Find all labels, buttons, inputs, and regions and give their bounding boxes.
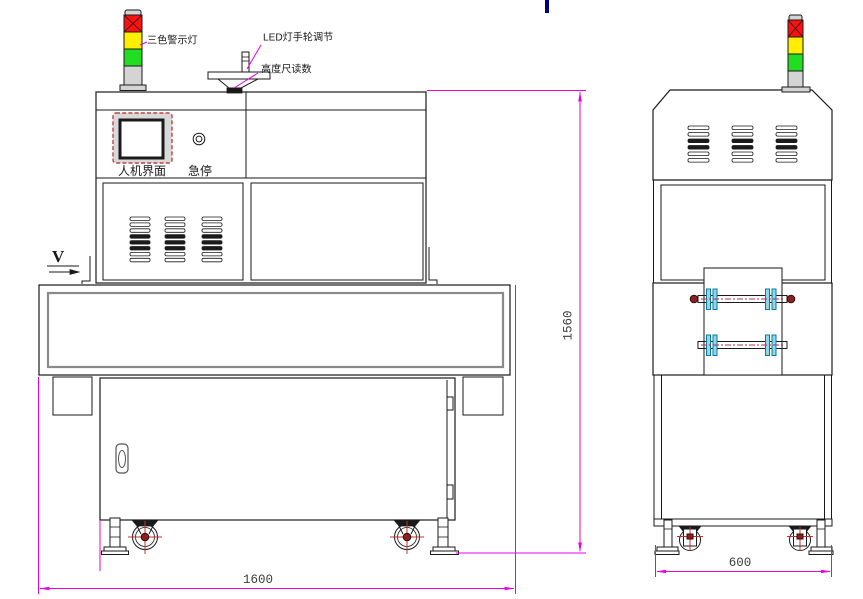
door-hinge: [447, 397, 453, 410]
tower-base-segment: [124, 66, 142, 85]
text-cursor-mark: [545, 0, 549, 13]
support-block-left: [53, 377, 92, 415]
dimension-overall-height: 1560: [563, 304, 576, 348]
center-block: [704, 268, 782, 375]
dimension-overall-depth: 600: [722, 557, 758, 570]
left-bracket: [82, 256, 90, 284]
caster-wheel-side: [787, 526, 813, 551]
tower-green-segment: [124, 49, 142, 66]
base-plate: [654, 519, 832, 526]
estop-label: 急停: [188, 165, 212, 178]
mount-screw: [787, 295, 795, 303]
cad-linework: [0, 0, 863, 599]
gauge-cone: [218, 79, 258, 88]
conveyor-section: [39, 285, 510, 375]
warning-tower-front: [120, 10, 146, 91]
door-handle-grip: [119, 451, 126, 468]
side-view: [653, 15, 833, 555]
direction-label: V: [52, 248, 64, 265]
door-hinge: [447, 485, 453, 499]
leveling-foot: [431, 518, 459, 555]
tower-base-plate: [120, 85, 146, 91]
gauge-base: [227, 88, 242, 93]
cad-drawing-canvas: 三色警示灯 LED灯手轮调节 高度尺读数 人机界面 急停 V 1600 1560…: [0, 0, 863, 599]
callout-led-handwheel: LED灯手轮调节: [263, 32, 333, 44]
front-view: [39, 10, 510, 555]
hmi-label: 人机界面: [118, 165, 166, 178]
side-roller-section: [653, 268, 832, 375]
caster-wheel: [390, 520, 424, 554]
direction-arrow: [47, 266, 79, 274]
hmi-screen: [120, 120, 163, 158]
tower-green-segment: [788, 54, 803, 71]
callout-height-gauge: 高度尺读数: [261, 64, 312, 76]
dimension-overall-length: 1600: [236, 574, 280, 587]
tower-yellow-segment: [124, 32, 142, 49]
side-lower-body: [654, 375, 832, 526]
tower-yellow-segment: [788, 37, 803, 54]
mount-screw: [690, 295, 698, 303]
warning-tower-side: [782, 15, 810, 92]
support-block-right: [463, 377, 503, 415]
right-bracket: [429, 247, 437, 284]
leveling-foot: [102, 518, 129, 555]
caster-wheel: [128, 520, 162, 554]
lower-cabinet: [100, 378, 455, 520]
handwheel-stem: [242, 52, 249, 72]
tower-base-segment: [788, 71, 803, 87]
caster-wheel-side: [677, 526, 703, 551]
tower-base-plate: [782, 87, 810, 92]
callout-tricolor-light: 三色警示灯: [147, 35, 198, 47]
